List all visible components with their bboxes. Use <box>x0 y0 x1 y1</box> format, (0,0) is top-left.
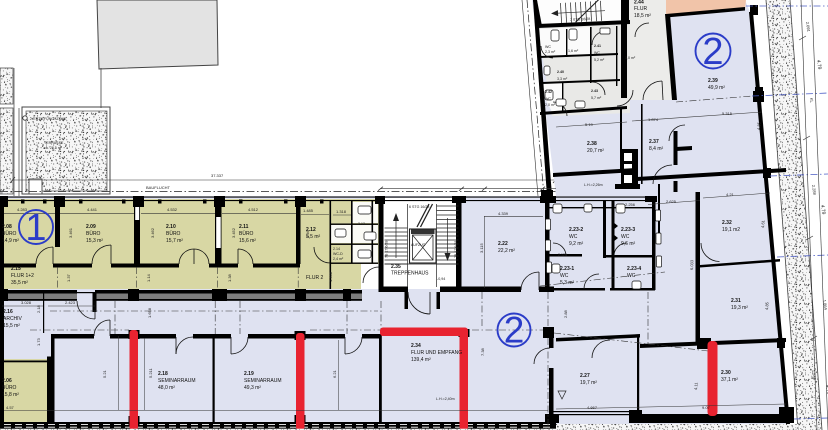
svg-text:2.06: 2.06 <box>2 378 12 384</box>
svg-text:19,1 m2: 19,1 m2 <box>722 227 740 233</box>
svg-text:WC: WC <box>545 97 551 101</box>
svg-text:2.10: 2.10 <box>166 224 176 230</box>
svg-text:5.315: 5.315 <box>722 111 733 116</box>
svg-text:5.21: 5.21 <box>102 369 107 378</box>
svg-text:15,3 m²: 15,3 m² <box>86 238 103 244</box>
svg-text:2.256: 2.256 <box>625 202 636 207</box>
svg-text:9.07: 9.07 <box>702 405 711 410</box>
svg-text:2.32: 2.32 <box>722 220 732 226</box>
svg-text:2.40: 2.40 <box>557 70 564 74</box>
svg-text:2.23-3: 2.23-3 <box>621 227 635 233</box>
svg-text:2.30: 2.30 <box>721 370 731 376</box>
svg-text:22,2 m²: 22,2 m² <box>498 248 515 254</box>
svg-text:2.42: 2.42 <box>545 90 552 94</box>
svg-text:2.423: 2.423 <box>65 300 76 305</box>
svg-text:VERTIEFUNGSZONE: VERTIEFUNGSZONE <box>31 117 67 121</box>
svg-text:5.211: 5.211 <box>148 368 153 378</box>
svg-text:L.H.=2,40m: L.H.=2,40m <box>436 397 455 401</box>
svg-text:1,0 m²: 1,0 m² <box>625 56 636 60</box>
svg-text:2: 2 <box>504 310 525 351</box>
svg-text:BÜRO: BÜRO <box>239 230 254 237</box>
svg-text:2.34: 2.34 <box>411 343 421 349</box>
svg-text:WC: WC <box>594 51 600 55</box>
svg-text:15,8 m²: 15,8 m² <box>2 392 19 398</box>
svg-text:1.485: 1.485 <box>303 208 314 213</box>
svg-text:1.874: 1.874 <box>648 117 659 122</box>
svg-text:4.85: 4.85 <box>756 121 762 130</box>
svg-text:3.462: 3.462 <box>150 227 155 238</box>
svg-text:2.125: 2.125 <box>558 253 567 257</box>
svg-text:2.38: 2.38 <box>587 141 597 147</box>
svg-text:19,7 m²: 19,7 m² <box>580 380 597 386</box>
svg-text:9,2 m²: 9,2 m² <box>569 241 584 247</box>
svg-text:2.88: 2.88 <box>563 309 568 318</box>
svg-text:2.23-2: 2.23-2 <box>569 227 583 233</box>
svg-text:2.15: 2.15 <box>11 266 21 272</box>
svg-text:2.08: 2.08 <box>2 224 12 230</box>
svg-text:WC: WC <box>569 234 578 240</box>
svg-text:1.318: 1.318 <box>336 209 347 214</box>
svg-text:2.13: 2.13 <box>358 222 365 226</box>
svg-text:6.033: 6.033 <box>689 259 694 270</box>
svg-text:3.028: 3.028 <box>21 300 32 305</box>
svg-text:5,2 m²: 5,2 m² <box>594 58 605 62</box>
svg-text:BÜRO: BÜRO <box>86 230 101 237</box>
svg-text:48,0 m²: 48,0 m² <box>158 385 175 391</box>
svg-text:1,6 m²: 1,6 m² <box>568 49 579 53</box>
svg-text:2.18: 2.18 <box>36 304 41 313</box>
svg-text:1.37: 1.37 <box>66 273 71 282</box>
svg-text:4.532: 4.532 <box>167 207 178 212</box>
svg-text:ARCHIV: ARCHIV <box>3 316 23 322</box>
svg-text:3.115: 3.115 <box>479 243 484 253</box>
svg-text:37,1 m²: 37,1 m² <box>721 377 738 383</box>
svg-text:8,4 m²: 8,4 m² <box>649 146 664 152</box>
svg-text:4.61: 4.61 <box>760 219 766 228</box>
svg-text:37.337: 37.337 <box>211 173 224 178</box>
svg-text:L.H.=2,26m: L.H.=2,26m <box>584 183 603 187</box>
svg-text:20,7 m²: 20,7 m² <box>587 148 604 154</box>
svg-text:ca. 28,5 m²: ca. 28,5 m² <box>44 146 63 150</box>
svg-text:2,4 m²: 2,4 m² <box>333 257 344 261</box>
svg-text:49,3 m²: 49,3 m² <box>244 385 261 391</box>
svg-text:4.667: 4.667 <box>587 405 598 410</box>
svg-text:2.41: 2.41 <box>594 44 601 48</box>
svg-text:3.452: 3.452 <box>231 227 236 238</box>
svg-text:2: 2 <box>702 31 723 73</box>
svg-text:1: 1 <box>25 207 46 249</box>
svg-text:2.27: 2.27 <box>580 373 590 379</box>
svg-text:2.39: 2.39 <box>708 78 718 84</box>
svg-text:15,5 m²: 15,5 m² <box>3 323 20 329</box>
svg-text:2.625: 2.625 <box>666 199 677 204</box>
svg-text:4.85: 4.85 <box>764 301 770 310</box>
svg-text:2,3 m²: 2,3 m² <box>545 50 556 54</box>
svg-text:BÜRO: BÜRO <box>166 230 181 237</box>
svg-text:2.23-1: 2.23-1 <box>560 266 574 272</box>
svg-text:TERRASSE: TERRASSE <box>44 141 64 145</box>
svg-text:WC: WC <box>627 273 636 279</box>
svg-text:2.16: 2.16 <box>3 309 13 315</box>
svg-text:2.11: 2.11 <box>239 224 249 230</box>
svg-text:7.38: 7.38 <box>480 347 485 356</box>
svg-text:2.44: 2.44 <box>634 0 644 6</box>
svg-text:4.11: 4.11 <box>693 381 699 390</box>
svg-text:2.35: 2.35 <box>391 264 401 270</box>
svg-text:1.38: 1.38 <box>227 273 232 282</box>
svg-text:BÜRO: BÜRO <box>2 384 17 391</box>
svg-text:5,7 m²: 5,7 m² <box>591 96 602 100</box>
svg-text:4.57: 4.57 <box>6 405 15 410</box>
svg-text:3,3 m²: 3,3 m² <box>557 77 568 81</box>
svg-text:BÜRO: BÜRO <box>2 230 17 237</box>
svg-text:2.18: 2.18 <box>158 371 168 377</box>
svg-text:1.658: 1.658 <box>147 307 152 318</box>
svg-text:9,6 m²: 9,6 m² <box>621 241 636 247</box>
svg-text:19,3 m²: 19,3 m² <box>731 305 748 311</box>
svg-text:SEMINARRAUM: SEMINARRAUM <box>244 378 282 384</box>
svg-text:FLUR 1+2: FLUR 1+2 <box>11 273 34 279</box>
svg-text:4.441: 4.441 <box>87 207 98 212</box>
svg-text:FLUR UND EMPFANG: FLUR UND EMPFANG <box>411 350 462 356</box>
svg-text:1.468: 1.468 <box>328 271 333 282</box>
svg-text:2.14: 2.14 <box>333 247 340 251</box>
svg-text:FLUR: FLUR <box>634 6 647 12</box>
svg-text:1.14: 1.14 <box>146 273 151 282</box>
svg-text:BAUFLUCHT: BAUFLUCHT <box>146 185 171 190</box>
svg-text:2.43: 2.43 <box>591 89 598 93</box>
svg-text:6.21: 6.21 <box>332 369 337 378</box>
svg-text:AUFZUG: AUFZUG <box>411 243 426 247</box>
svg-text:1.73: 1.73 <box>36 337 41 346</box>
svg-text:3.46: 3.46 <box>305 229 310 238</box>
svg-text:6 STG 16/28: 6 STG 16/28 <box>409 205 429 209</box>
svg-text:4.512: 4.512 <box>248 207 259 212</box>
svg-text:4.21: 4.21 <box>726 192 735 197</box>
svg-text:14,9 m²: 14,9 m² <box>2 238 19 244</box>
svg-text:WC: WC <box>621 234 630 240</box>
svg-text:WC-D: WC-D <box>333 252 343 256</box>
svg-text:2.09: 2.09 <box>86 224 96 230</box>
svg-text:4.339: 4.339 <box>498 211 509 216</box>
svg-text:FLUR 2: FLUR 2 <box>306 275 323 281</box>
svg-text:7B 17,6/28: 7B 17,6/28 <box>385 241 389 258</box>
svg-text:3.461: 3.461 <box>68 227 73 238</box>
svg-text:2,0 m²: 2,0 m² <box>545 103 556 107</box>
svg-text:SEMINARRAUM: SEMINARRAUM <box>158 378 196 384</box>
svg-text:2.37: 2.37 <box>649 139 659 145</box>
svg-text:2.31: 2.31 <box>731 298 741 304</box>
svg-text:49,9 m²: 49,9 m² <box>708 85 725 91</box>
svg-text:WC: WC <box>545 45 551 49</box>
svg-text:2.22: 2.22 <box>498 241 508 247</box>
svg-text:5.19: 5.19 <box>585 122 594 127</box>
svg-text:7B 17,6/28: 7B 17,6/28 <box>454 241 458 258</box>
svg-text:15,6 m²: 15,6 m² <box>239 238 256 244</box>
svg-text:5,3 m²: 5,3 m² <box>560 280 575 286</box>
svg-text:139,4 m²: 139,4 m² <box>411 357 431 363</box>
svg-text:WC: WC <box>560 273 569 279</box>
svg-text:18,5 m²: 18,5 m² <box>634 13 651 19</box>
svg-text:TREPPENHAUS: TREPPENHAUS <box>391 271 429 277</box>
svg-text:35,5 m²: 35,5 m² <box>11 280 28 286</box>
svg-text:2.23-4: 2.23-4 <box>627 266 641 272</box>
svg-text:15,7 m²: 15,7 m² <box>166 238 183 244</box>
svg-text:2.19: 2.19 <box>244 371 254 377</box>
svg-text:-0,94: -0,94 <box>437 277 445 281</box>
